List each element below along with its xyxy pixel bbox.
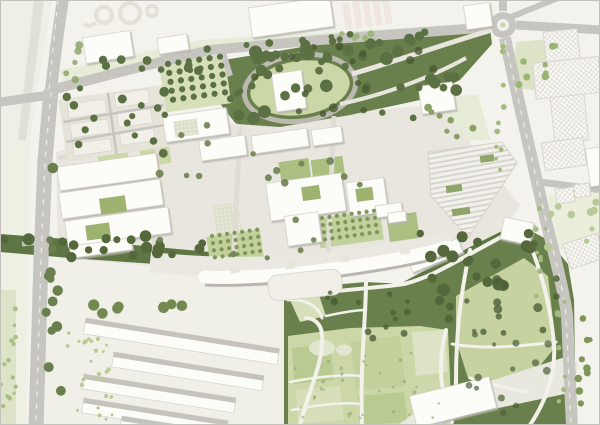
site-plan-screenshot [0, 0, 600, 425]
oval-lawn-building [272, 70, 307, 112]
roundabout [490, 12, 516, 38]
site-plan-map [0, 0, 600, 425]
